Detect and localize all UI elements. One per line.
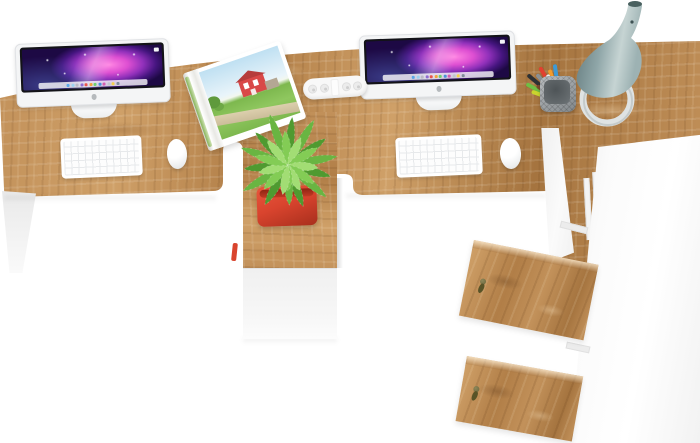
dock-app-icon [439, 74, 442, 77]
dock-app-icon [71, 83, 74, 86]
imac-wallpaper [22, 44, 163, 90]
connector-hole [353, 81, 363, 91]
dock-app-icon [94, 82, 97, 85]
dock-app-icon [457, 74, 460, 77]
dock-bar [383, 71, 494, 81]
dock-app-icon [89, 83, 92, 86]
dock-app-icon [461, 74, 464, 77]
left-desk-leg [2, 191, 36, 273]
imac-body [359, 30, 517, 99]
imac-body [15, 38, 171, 108]
dock-app-icon [85, 83, 88, 86]
dock-app-icon [80, 83, 83, 86]
imac-left [15, 38, 172, 124]
under-pedestal-cabinet [243, 268, 337, 339]
imac-wallpaper [366, 37, 509, 83]
dock-app-icon [103, 82, 106, 85]
magazine-photo-red-barn [238, 73, 268, 98]
keyboard-right [395, 134, 483, 178]
dock-app-icon [107, 82, 110, 85]
connector-hole [308, 84, 318, 94]
potted-plant-leaves [225, 103, 351, 235]
scene-two-person-desk-top-view [0, 0, 700, 443]
door-key-upper [479, 278, 486, 285]
vase-lamp [573, 0, 685, 128]
dock-app-icon [452, 74, 455, 77]
desk-connector-pill [302, 75, 367, 100]
magazine-photo-shed [265, 77, 280, 90]
connector-hole [341, 82, 351, 92]
apple-logo-icon [436, 86, 441, 92]
dock-app-icon [430, 75, 433, 78]
desktop-drive-icon [500, 40, 505, 44]
desk-edge-shadow [4, 196, 216, 202]
keyboard-keys [63, 138, 139, 175]
dock-app-icon [421, 75, 424, 78]
dock-app-icon [448, 74, 451, 77]
imac-screen-bezel [364, 34, 511, 84]
dock-bar [38, 79, 147, 89]
door-edge [466, 356, 584, 384]
keyboard-keys [398, 137, 479, 174]
keyboard-left [60, 135, 143, 178]
lamp-cone-body [577, 1, 642, 98]
dock-app-icon [412, 75, 415, 78]
dock-app-icon [416, 75, 419, 78]
dock-app-icon [76, 83, 79, 86]
dock-app-icon [434, 75, 437, 78]
dock-app-icon [98, 82, 101, 85]
dock-app-icon [443, 74, 446, 77]
desk-edge-shadow [346, 194, 546, 200]
lamp-neck-opening [628, 1, 642, 7]
connector-hole [319, 83, 329, 93]
desktop-drive-icon [154, 47, 159, 51]
imac-screen-bezel [20, 42, 166, 92]
door-key-lower [473, 386, 480, 393]
dock-app-icon [425, 75, 428, 78]
apple-logo-icon [91, 94, 96, 100]
connector-clip [330, 79, 339, 97]
imac-right [359, 30, 518, 117]
pencil-cup [540, 76, 576, 112]
dock-app-icon [116, 81, 119, 84]
lamp-neck-dot [630, 20, 633, 23]
dock-app-icon [67, 83, 70, 86]
red-object-sliver [231, 243, 238, 261]
oak-cabinet-door-lower [456, 356, 584, 441]
dock-app-icon [112, 82, 115, 85]
